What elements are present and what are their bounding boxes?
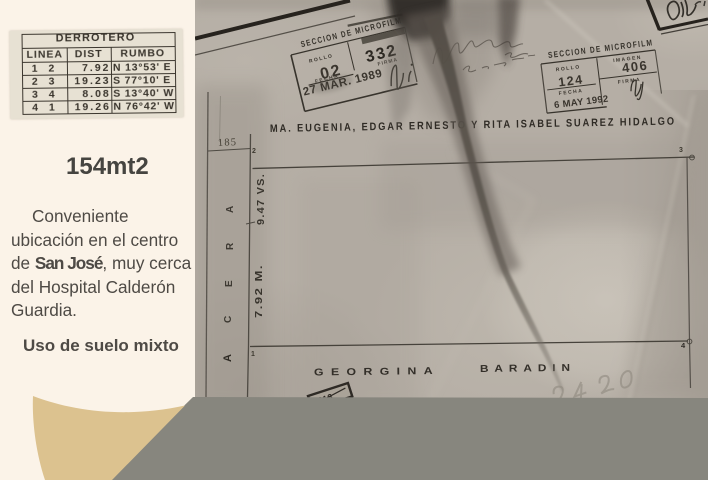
svg-text:406: 406: [621, 58, 649, 76]
svg-text:185: 185: [218, 137, 238, 149]
svg-text:A: A: [222, 354, 234, 362]
svg-text:9.47 VS.: 9.47 VS.: [255, 173, 267, 225]
svg-text:GEORGINA: GEORGINA: [314, 366, 440, 379]
svg-text:2: 2: [252, 148, 256, 155]
svg-text:BARADIN: BARADIN: [480, 363, 576, 375]
svg-text:1: 1: [251, 351, 255, 358]
svg-text:3: 3: [679, 147, 683, 154]
svg-text:7.92 M.: 7.92 M.: [253, 264, 265, 318]
